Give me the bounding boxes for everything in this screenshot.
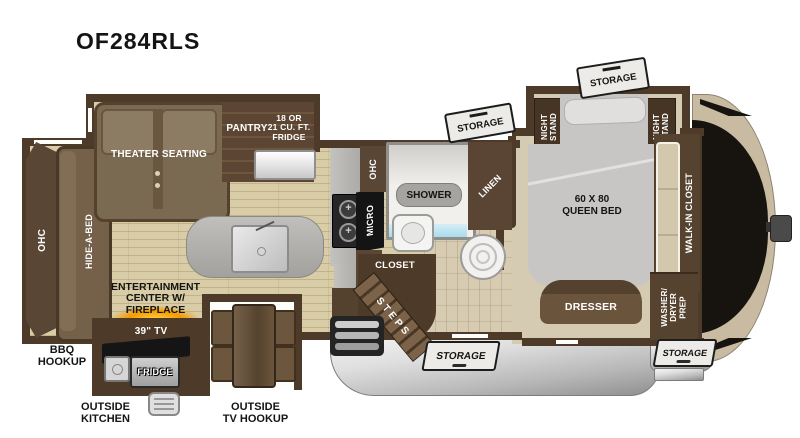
entertainment-center-unit: 39" TV FRIDGE xyxy=(92,318,210,396)
pantry-label: PANTRY xyxy=(226,123,267,134)
vent-line-2 xyxy=(154,403,174,405)
refrigerator xyxy=(254,150,316,180)
window-bottom-main xyxy=(452,334,488,338)
walk-in-closet-label: WALK-IN CLOSET xyxy=(684,173,694,253)
storage-door-main-label: STORAGE xyxy=(435,351,486,362)
drain-icon xyxy=(257,247,266,256)
window-top-rear xyxy=(34,140,82,144)
wall-dinette-left xyxy=(202,294,210,390)
front-step xyxy=(654,368,704,381)
microwave-label: MICRO xyxy=(365,204,375,237)
window-bottom-bedroom xyxy=(556,340,578,344)
fridge-label: 18 OR 21 CU. FT. FRIDGE xyxy=(268,114,311,142)
queen-bed: 60 X 80 QUEEN BED xyxy=(528,144,656,286)
wall-slide-top xyxy=(86,94,320,102)
cupholder-icon xyxy=(155,171,160,176)
night-stand-left-label: NIGHT STAND xyxy=(540,113,558,141)
shower-label: SHOWER xyxy=(407,190,452,201)
bbq-hookup-label: BBQ HOOKUP xyxy=(38,344,86,368)
floorplan-canvas: OF284RLS OHC HIDE xyxy=(0,0,800,438)
microwave: MICRO xyxy=(356,188,384,253)
storage-flag-bath-label: STORAGE xyxy=(456,115,504,134)
wardrobe-shelf xyxy=(658,188,678,190)
dresser-label: DRESSER xyxy=(565,301,617,313)
theater-seating-unit: THEATER SEATING xyxy=(94,102,230,222)
wardrobe xyxy=(656,142,680,284)
dresser: DRESSER xyxy=(540,280,642,324)
theater-seating-label: THEATER SEATING xyxy=(111,149,207,160)
rear-ohc-cabinet: OHC xyxy=(26,142,60,338)
bath-sink-basin xyxy=(401,222,425,244)
vent-line xyxy=(154,398,174,400)
outside-sink-basin xyxy=(112,364,123,375)
faucet-icon xyxy=(256,221,275,231)
washer-dryer-prep: WASHER/ DRYER PREP xyxy=(650,272,698,340)
dresser-top-shade xyxy=(540,280,642,294)
kitchen-island xyxy=(186,216,324,278)
storage-flag-bedroom-label: STORAGE xyxy=(589,71,637,89)
bed-fold-line xyxy=(528,156,656,188)
step-tread-2 xyxy=(335,332,379,339)
linen-cabinet: LINEN xyxy=(468,142,512,230)
wardrobe-shelf-2 xyxy=(658,234,678,236)
storage-handle-icon xyxy=(452,364,467,367)
vent-line-3 xyxy=(154,408,174,410)
pantry-fridge-cabinet: PANTRY 18 OR 21 CU. FT. FRIDGE xyxy=(222,102,314,182)
rear-ohc-label: OHC xyxy=(37,229,49,252)
wall-bedslide-left xyxy=(526,86,534,136)
closet-label: CLOSET xyxy=(375,260,415,271)
linen-label: LINEN xyxy=(477,173,504,200)
entry-steps xyxy=(330,316,384,356)
island-sink xyxy=(231,225,289,273)
wall-dinette-top xyxy=(202,294,302,302)
step-tread-3 xyxy=(335,343,379,350)
bath-sink xyxy=(392,214,434,252)
outside-kitchen-fridge: FRIDGE xyxy=(130,356,180,388)
ohc-upper-label: OHC xyxy=(368,159,378,180)
dinette-table xyxy=(232,304,276,388)
hitch-pin-icon xyxy=(770,215,792,242)
flag-hinge-icon-2 xyxy=(602,66,620,72)
cupholder-icon-2 xyxy=(155,183,160,188)
storage-flag-bath: STORAGE xyxy=(444,102,516,143)
storage-door-front: STORAGE xyxy=(653,339,718,367)
floorplan-title: OF284RLS xyxy=(76,28,200,55)
walk-in-closet: WALK-IN CLOSET xyxy=(654,134,700,292)
storage-handle-icon-2 xyxy=(676,360,691,363)
queen-bed-label: 60 X 80 QUEEN BED xyxy=(562,194,621,219)
hide-a-bed-label: HIDE-A-BED xyxy=(84,214,94,269)
tv-39-label: 39" TV xyxy=(135,326,168,337)
toilet xyxy=(460,234,506,280)
toilet-ring-2 xyxy=(476,250,490,264)
entertainment-center-label: ENTERTAINMENT CENTER W/ FIREPLACE xyxy=(111,282,200,316)
outside-kitchen-sink xyxy=(104,356,130,382)
window-slide-left xyxy=(88,108,92,132)
wall-bedslide-right xyxy=(682,86,690,136)
flag-hinge-icon xyxy=(469,112,487,118)
step-tread xyxy=(335,321,379,328)
storage-door-main: STORAGE xyxy=(421,341,500,371)
ohc-upper-cabinet: OHC xyxy=(360,146,386,192)
pillow xyxy=(564,97,647,126)
outside-tv-hookup-label: OUTSIDE TV HOOKUP xyxy=(223,401,288,425)
outside-kitchen-label: OUTSIDE KITCHEN xyxy=(81,401,130,425)
storage-door-front-label: STORAGE xyxy=(662,348,708,358)
washer-dryer-prep-label: WASHER/ DRYER PREP xyxy=(660,288,688,327)
outside-fridge-label: FRIDGE xyxy=(137,367,172,377)
